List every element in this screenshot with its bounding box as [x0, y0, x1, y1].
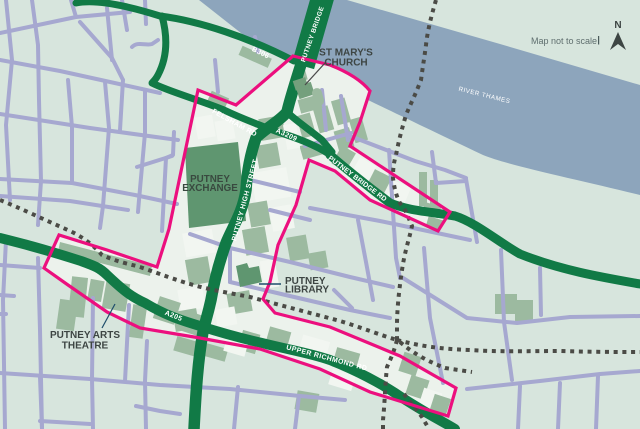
svg-text:LIBRARY: LIBRARY: [285, 285, 329, 296]
svg-text:PUTNEY ARTS: PUTNEY ARTS: [50, 330, 120, 341]
svg-text:EXCHANGE: EXCHANGE: [182, 183, 238, 194]
svg-text:CHURCH: CHURCH: [324, 58, 367, 69]
svg-text:THEATRE: THEATRE: [62, 341, 109, 352]
svg-text:Map not to scale: Map not to scale: [531, 36, 597, 46]
svg-text:N: N: [614, 20, 621, 31]
